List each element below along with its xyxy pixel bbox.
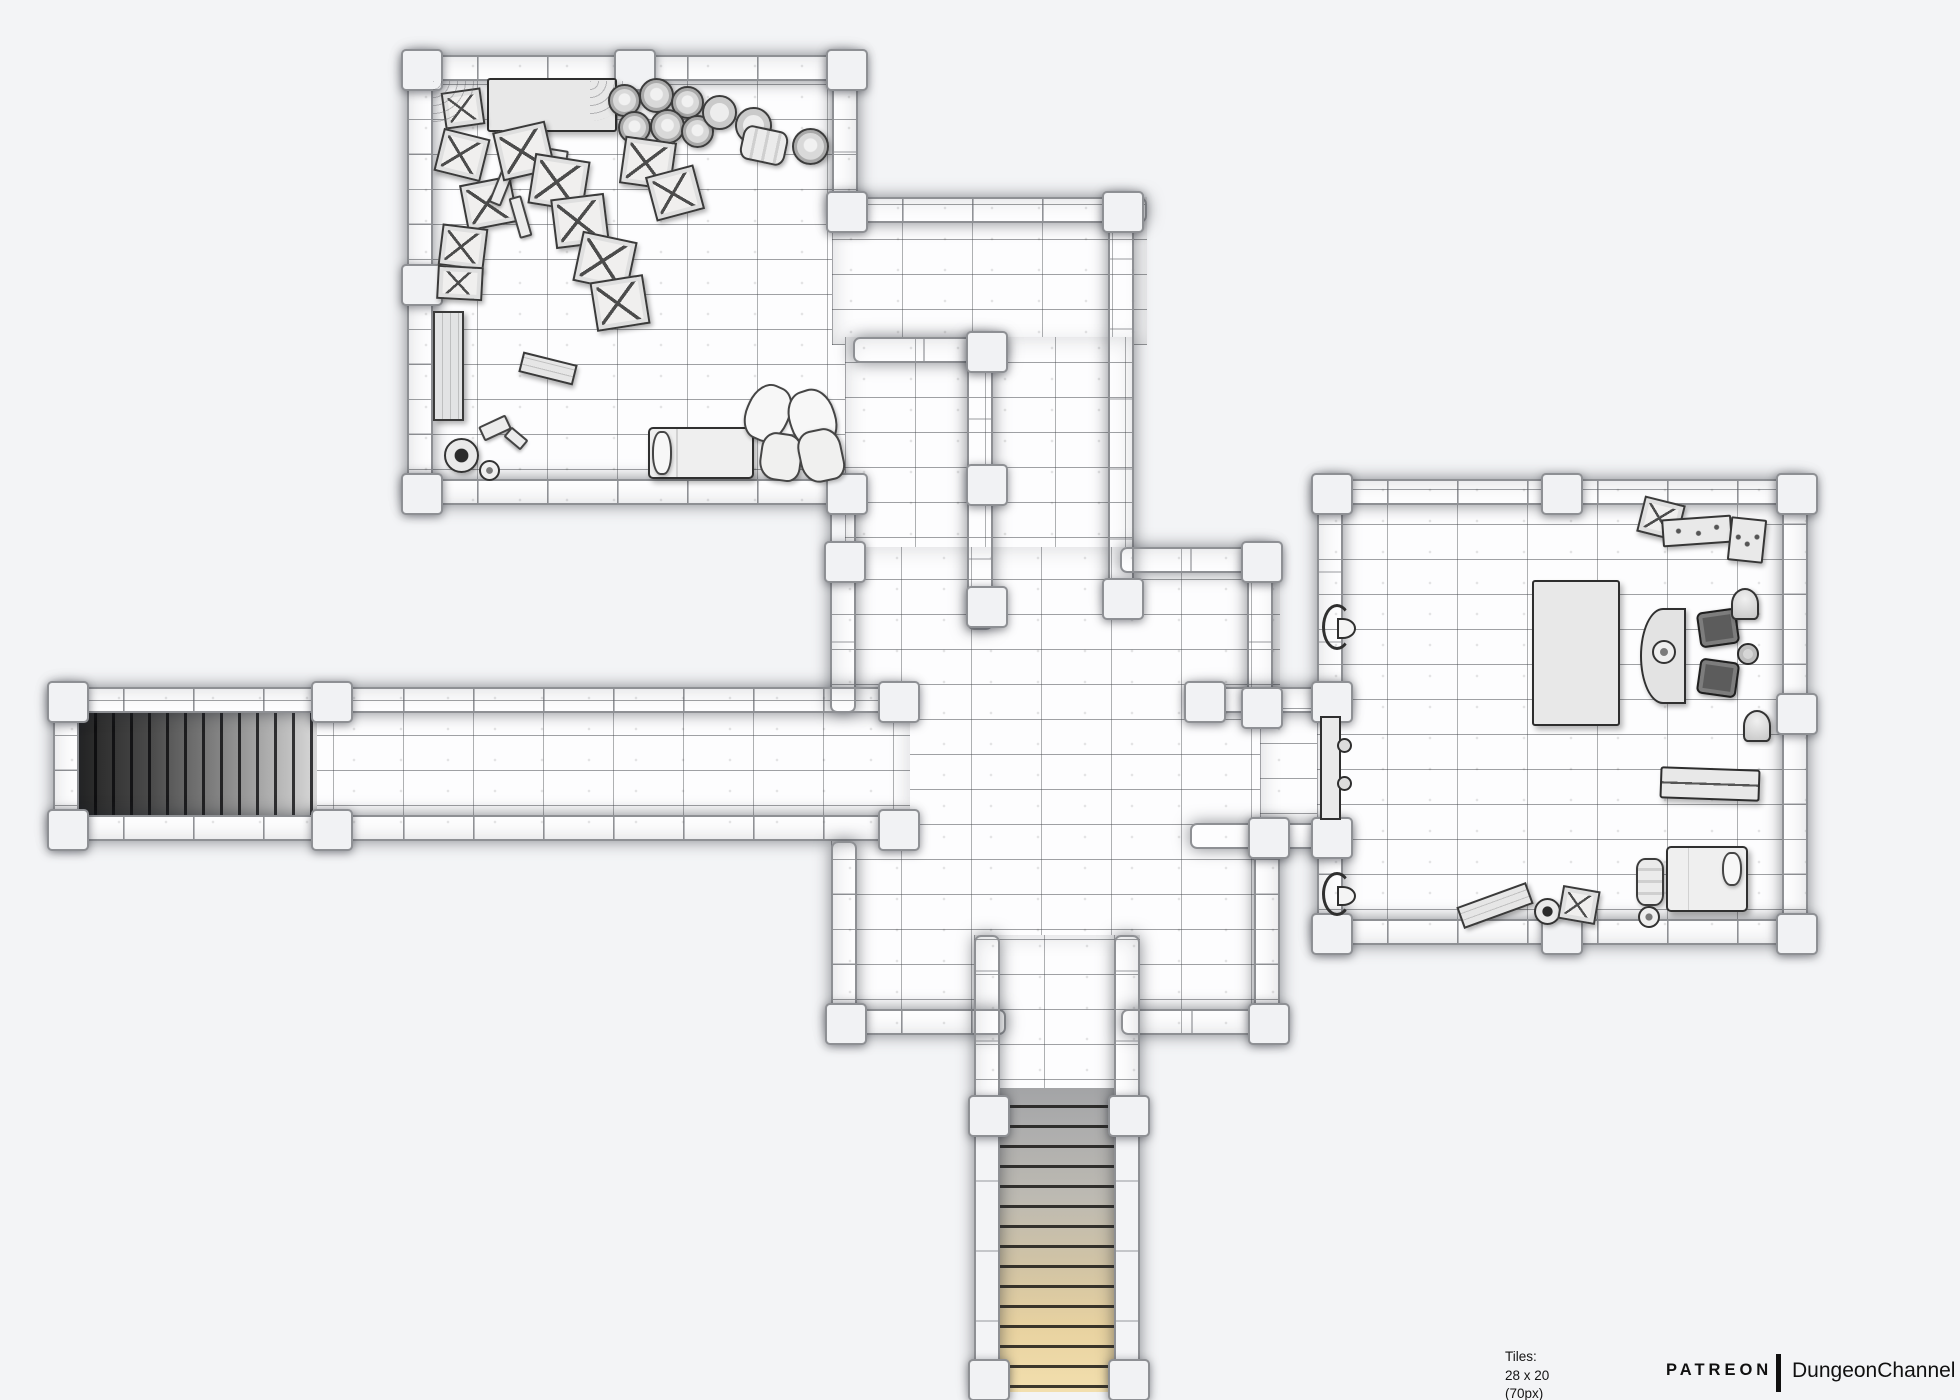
door-icon (1320, 716, 1341, 820)
desk-icon (1727, 516, 1767, 564)
south-stairs (1000, 1088, 1114, 1392)
wall (974, 935, 1000, 1392)
wall-pillar (1776, 473, 1818, 515)
wall-pillar (47, 681, 89, 723)
wall (53, 687, 910, 713)
wall-pillar (311, 809, 353, 851)
wall-pillar (966, 331, 1008, 373)
west-stairs (79, 713, 317, 815)
wall-pillar (968, 1095, 1010, 1137)
wall-pillar (47, 809, 89, 851)
crate-icon (589, 274, 650, 332)
pot-icon (444, 438, 479, 473)
wall-pillar (1311, 913, 1353, 955)
wall-pillar (1241, 687, 1283, 729)
wall-pillar (1248, 817, 1290, 859)
crate-icon (438, 223, 489, 270)
wall (830, 505, 856, 713)
wall-pillar (825, 1003, 867, 1045)
pillow-icon (652, 431, 672, 475)
wall-pillar (311, 681, 353, 723)
chair-icon (1696, 657, 1741, 698)
wall-pillar (824, 541, 866, 583)
bell-icon (1743, 710, 1771, 742)
bell-icon (1731, 588, 1759, 620)
barrel-icon (650, 109, 685, 144)
pot-icon (1534, 898, 1561, 925)
wall-pillar (878, 681, 920, 723)
crate-icon (1557, 885, 1600, 925)
wall (832, 197, 1147, 223)
keg-v-icon (1636, 858, 1664, 906)
wall-pillar (1241, 541, 1283, 583)
ring-icon (702, 95, 737, 130)
chest-icon (1659, 766, 1760, 801)
dungeon-map-canvas: Tiles: 28 x 20 (70px) Image: 1960 x 1400… (0, 0, 1960, 1400)
dungeon-map (0, 0, 1960, 1400)
bench-v-icon (433, 311, 464, 421)
wall-pillar (878, 809, 920, 851)
wall (407, 479, 858, 505)
wall-pillar (1102, 191, 1144, 233)
pot-small-icon (1638, 906, 1660, 928)
wall-pillar (1108, 1095, 1150, 1137)
tiles-info: Tiles: 28 x 20 (70px) (1505, 1348, 1549, 1400)
wall-pillar (1102, 578, 1144, 620)
wall-pillar (968, 1359, 1010, 1400)
wall-pillar (1541, 473, 1583, 515)
patreon-wordmark: PATREON (1666, 1361, 1772, 1380)
barrel-icon (639, 78, 674, 113)
barrel-icon (792, 128, 829, 165)
wall-pillar (826, 191, 868, 233)
map-meta: Tiles: 28 x 20 (70px) Image: 1960 x 1400… (1505, 1348, 1549, 1400)
wall (1114, 935, 1140, 1392)
wall-pillar (1311, 817, 1353, 859)
wall-pillar (401, 473, 443, 515)
brand-divider (1776, 1354, 1781, 1392)
table-icon (1532, 580, 1620, 726)
pot-small-icon (1652, 640, 1676, 664)
torch-icon (1322, 604, 1352, 650)
stool-icon (1737, 643, 1759, 665)
wall-pillar (966, 464, 1008, 506)
crate-icon (436, 265, 484, 301)
pot-small-icon (479, 460, 500, 481)
wall (53, 815, 910, 841)
wall-pillar (1108, 1359, 1150, 1400)
wall-pillar (966, 586, 1008, 628)
pillow-icon (1722, 852, 1742, 886)
wall-pillar (1311, 473, 1353, 515)
desk-icon (1661, 515, 1733, 548)
wall-pillar (1776, 913, 1818, 955)
wall-pillar (1776, 693, 1818, 735)
torch-icon (1322, 872, 1352, 916)
channel-name: DungeonChannel (1792, 1359, 1955, 1383)
wall-pillar (826, 49, 868, 91)
wall-pillar (1248, 1003, 1290, 1045)
wall-pillar (1184, 681, 1226, 723)
